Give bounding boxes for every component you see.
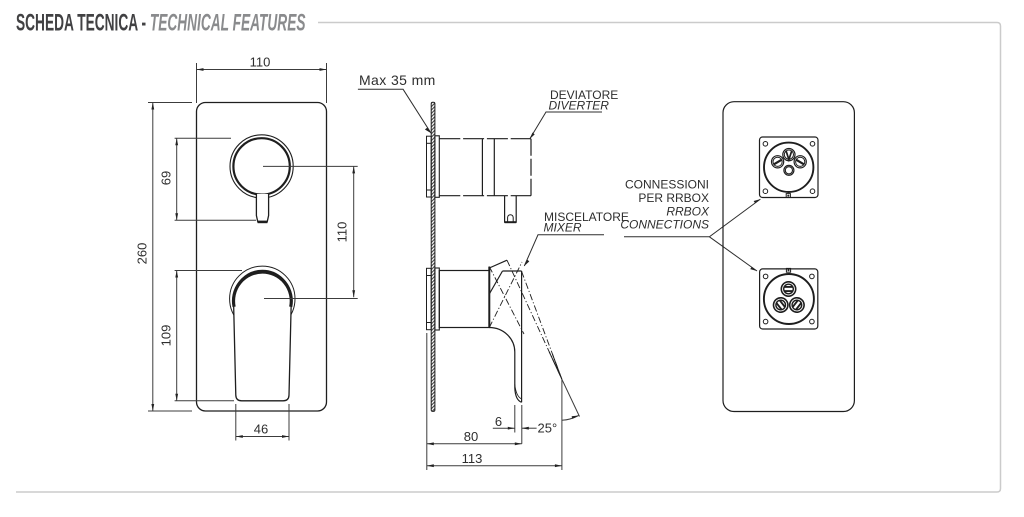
- svg-text:SCHEDA TECNICA - TECHNICAL FEA: SCHEDA TECNICA - TECHNICAL FEATURES: [16, 10, 306, 37]
- svg-text:110: 110: [250, 55, 271, 70]
- svg-text:MIXER: MIXER: [544, 221, 582, 235]
- svg-text:69: 69: [158, 171, 173, 185]
- svg-text:6: 6: [495, 414, 502, 429]
- svg-text:109: 109: [158, 325, 173, 347]
- svg-text:25°: 25°: [538, 421, 558, 436]
- svg-text:CONNECTIONS: CONNECTIONS: [620, 218, 709, 232]
- svg-text:110: 110: [335, 222, 350, 243]
- svg-text:260: 260: [135, 243, 150, 265]
- svg-text:DIVERTER: DIVERTER: [549, 99, 610, 113]
- svg-text:PER RRBOX: PER RRBOX: [638, 191, 709, 205]
- svg-text:Max 35 mm: Max 35 mm: [359, 72, 436, 88]
- svg-text:113: 113: [462, 451, 483, 466]
- svg-text:80: 80: [464, 429, 478, 444]
- svg-text:CONNESSIONI: CONNESSIONI: [625, 178, 709, 192]
- svg-text:RRBOX: RRBOX: [666, 204, 710, 218]
- svg-text:46: 46: [254, 422, 268, 437]
